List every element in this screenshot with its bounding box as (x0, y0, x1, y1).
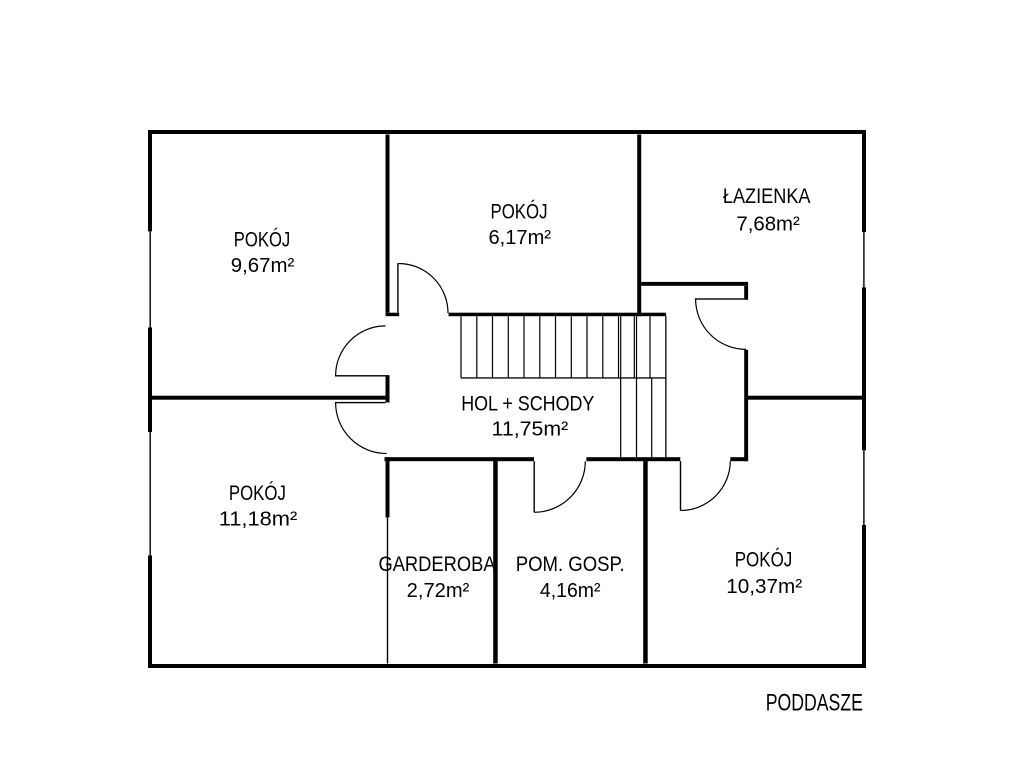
svg-text:4,16m²: 4,16m² (540, 580, 601, 602)
svg-text:2,72m²: 2,72m² (407, 580, 470, 602)
svg-text:9,67m²: 9,67m² (231, 255, 295, 277)
svg-text:POKÓJ: POKÓJ (229, 480, 286, 505)
svg-text:POKÓJ: POKÓJ (735, 547, 793, 572)
svg-text:POKÓJ: POKÓJ (491, 199, 548, 224)
svg-text:POM. GOSP.: POM. GOSP. (516, 552, 625, 576)
svg-text:HOL + SCHODY: HOL + SCHODY (461, 391, 594, 415)
svg-text:ŁAZIENKA: ŁAZIENKA (723, 184, 811, 208)
svg-text:11,18m²: 11,18m² (219, 509, 298, 531)
svg-text:PODDASZE: PODDASZE (766, 690, 863, 717)
svg-text:11,75m²: 11,75m² (492, 419, 569, 441)
svg-text:7,68m²: 7,68m² (736, 214, 800, 236)
svg-text:GARDEROBA: GARDEROBA (378, 552, 496, 576)
svg-text:POKÓJ: POKÓJ (234, 226, 291, 251)
svg-text:10,37m²: 10,37m² (726, 576, 802, 598)
svg-text:6,17m²: 6,17m² (489, 227, 552, 249)
